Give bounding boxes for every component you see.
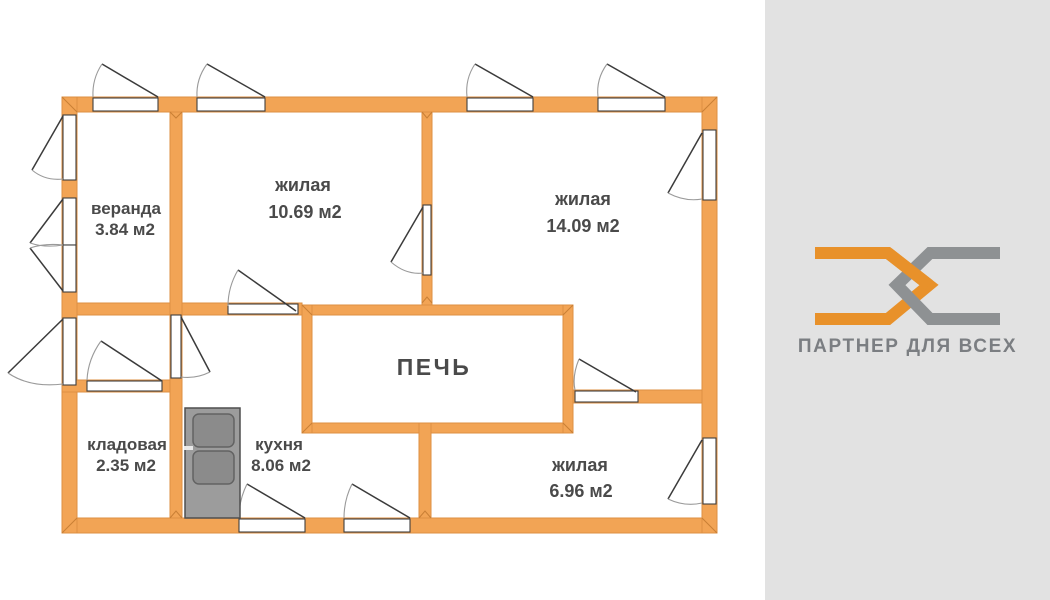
- room-area-room1: 10.69 м2: [268, 202, 341, 222]
- room-label-kitchen: кухня: [255, 435, 303, 454]
- wall-stove-top: [302, 305, 573, 315]
- door-hall-kitchen: [171, 315, 181, 378]
- appliance-handle: [184, 446, 193, 450]
- brand-panel: ПАРТНЕР ДЛЯ ВСЕХ: [765, 0, 1050, 600]
- screenshot-root: веранда 3.84 м2 жилая 10.69 м2 жилая 14.…: [0, 0, 1050, 600]
- wall-veranda-divider: [170, 112, 182, 315]
- floor-plan-area: веранда 3.84 м2 жилая 10.69 м2 жилая 14.…: [0, 0, 765, 600]
- wall-kitchen-divider: [419, 423, 431, 518]
- door-room2-room3: [575, 391, 638, 402]
- wall-stove-right: [563, 305, 573, 433]
- floor-plan-drawing: веранда 3.84 м2 жилая 10.69 м2 жилая 14.…: [0, 0, 765, 600]
- room-labels: веранда 3.84 м2 жилая 10.69 м2 жилая 14.…: [87, 175, 620, 501]
- stove-label: ПЕЧЬ: [397, 354, 472, 380]
- window-top-room2-a: [467, 98, 533, 111]
- room-label-room1: жилая: [274, 175, 331, 195]
- appliance-panel-top: [193, 414, 234, 447]
- room-area-veranda: 3.84 м2: [95, 220, 155, 239]
- window-top-room1: [197, 98, 265, 111]
- room-area-room3: 6.96 м2: [549, 481, 612, 501]
- room-area-room2: 14.09 м2: [546, 216, 619, 236]
- door-entrance: [63, 318, 76, 385]
- room-label-room3: жилая: [551, 455, 608, 475]
- window-right-room2: [703, 130, 716, 200]
- room-label-veranda: веранда: [91, 199, 162, 218]
- door-room1-room2: [423, 205, 431, 275]
- window-top-veranda: [93, 98, 158, 111]
- window-left-b: [63, 198, 76, 245]
- room-area-storage: 2.35 м2: [96, 456, 156, 475]
- door-bottom-a: [239, 519, 305, 532]
- room-label-room2: жилая: [554, 189, 611, 209]
- walls: [62, 97, 717, 533]
- logo-gray-chevron: [897, 253, 1000, 319]
- window-top-room2-b: [598, 98, 665, 111]
- window-right-room3: [703, 438, 716, 504]
- door-hall-storage: [87, 381, 162, 391]
- door-bottom-b: [344, 519, 410, 532]
- logo-text: ПАРТНЕР ДЛЯ ВСЕХ: [798, 336, 1017, 358]
- wall-stove-bottom: [302, 423, 573, 433]
- room-area-kitchen: 8.06 м2: [251, 456, 311, 475]
- window-left-c: [63, 245, 76, 292]
- kitchen-appliance: [184, 408, 240, 518]
- wall-stove-left: [302, 305, 312, 433]
- room-label-storage: кладовая: [87, 435, 167, 454]
- company-logo-icon: [805, 240, 1010, 330]
- window-left-a: [63, 115, 76, 180]
- appliance-panel-bottom: [193, 451, 234, 484]
